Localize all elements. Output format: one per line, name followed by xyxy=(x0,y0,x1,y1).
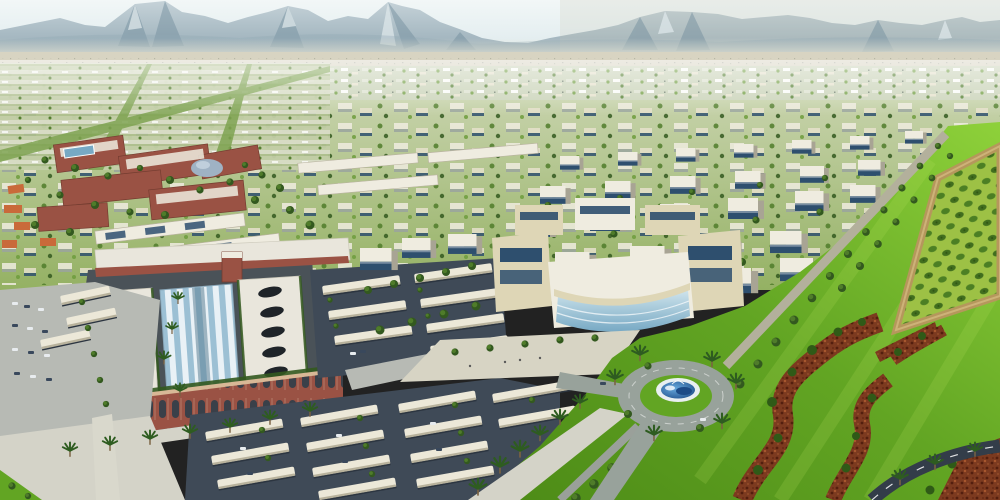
campus-dome xyxy=(191,159,223,177)
horizon-haze xyxy=(0,60,1000,116)
rendering-canvas: Aerial rendering of a master-planned des… xyxy=(0,0,1000,500)
aerial-city-rendering: Aerial rendering of a master-planned des… xyxy=(0,0,1000,500)
